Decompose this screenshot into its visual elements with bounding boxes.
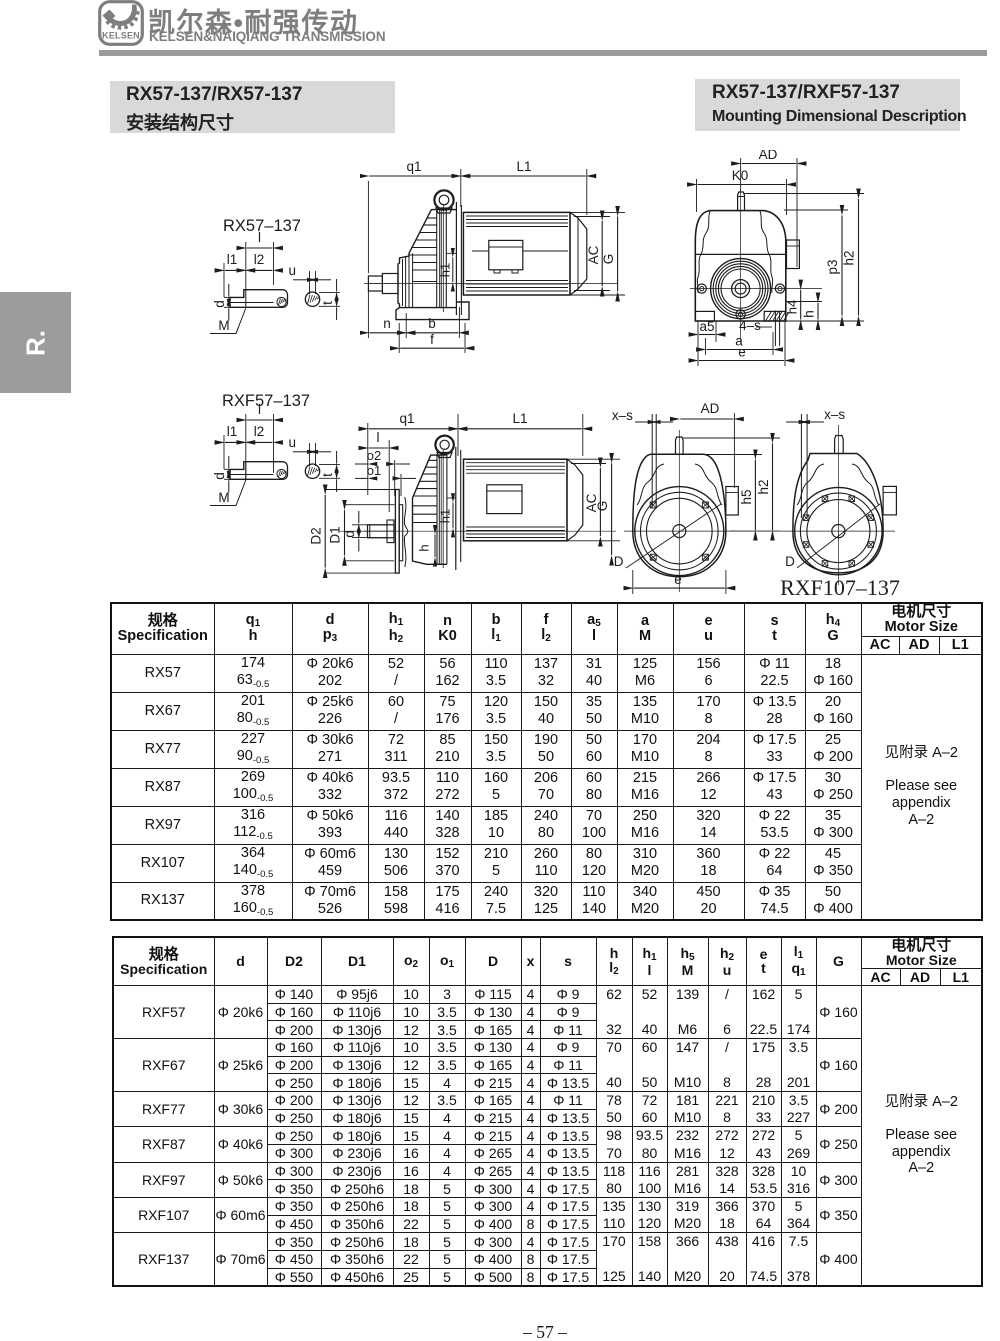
svg-text:4–s: 4–s [739, 318, 761, 333]
svg-text:h: h [802, 310, 817, 318]
svg-text:AC: AC [586, 245, 601, 264]
svg-text:h: h [417, 544, 432, 551]
svg-text:K0: K0 [732, 168, 749, 183]
svg-text:p3: p3 [825, 259, 840, 274]
svg-text:D: D [614, 554, 624, 569]
svg-text:h1: h1 [438, 509, 453, 523]
svg-text:h2: h2 [756, 479, 771, 494]
svg-text:l: l [258, 402, 261, 417]
svg-text:l: l [377, 430, 380, 445]
svg-text:h2: h2 [842, 250, 857, 265]
svg-text:AD: AD [759, 150, 778, 162]
svg-text:e: e [738, 345, 746, 360]
svg-text:l1: l1 [227, 252, 238, 267]
svg-text:l2: l2 [254, 252, 265, 267]
svg-text:RX57–137: RX57–137 [223, 217, 301, 235]
svg-text:RXF57–137: RXF57–137 [222, 393, 310, 410]
svg-text:a5: a5 [699, 319, 714, 334]
svg-text:x–s: x–s [824, 407, 845, 422]
svg-text:x–s: x–s [612, 408, 633, 423]
svg-text:L1: L1 [512, 411, 527, 426]
svg-text:M: M [218, 318, 229, 333]
svg-text:d: d [212, 300, 227, 308]
svg-text:t: t [320, 473, 335, 477]
svg-text:l2: l2 [254, 424, 265, 439]
svg-text:q1: q1 [399, 411, 414, 426]
svg-text:h5: h5 [739, 489, 754, 504]
svg-text:h1: h1 [438, 263, 453, 277]
svg-text:G: G [595, 501, 610, 512]
svg-text:KELSEN: KELSEN [102, 31, 140, 41]
svg-text:L1: L1 [516, 159, 531, 174]
svg-text:t: t [320, 301, 335, 305]
svg-text:f: f [430, 332, 434, 347]
svg-text:u: u [288, 435, 296, 450]
svg-text:h4: h4 [784, 300, 799, 314]
svg-text:l: l [258, 230, 261, 245]
svg-text:b: b [428, 316, 436, 331]
svg-text:l1: l1 [227, 424, 238, 439]
svg-text:d: d [212, 472, 227, 480]
svg-text:M: M [218, 490, 229, 505]
svg-text:e: e [674, 572, 682, 587]
svg-text:RXF107–137: RXF107–137 [780, 575, 900, 600]
svg-text:D: D [785, 554, 795, 569]
svg-text:n: n [383, 316, 391, 331]
svg-text:AD: AD [701, 401, 720, 416]
svg-text:q1: q1 [406, 159, 421, 174]
svg-text:u: u [288, 263, 296, 278]
svg-text:G: G [601, 254, 616, 265]
